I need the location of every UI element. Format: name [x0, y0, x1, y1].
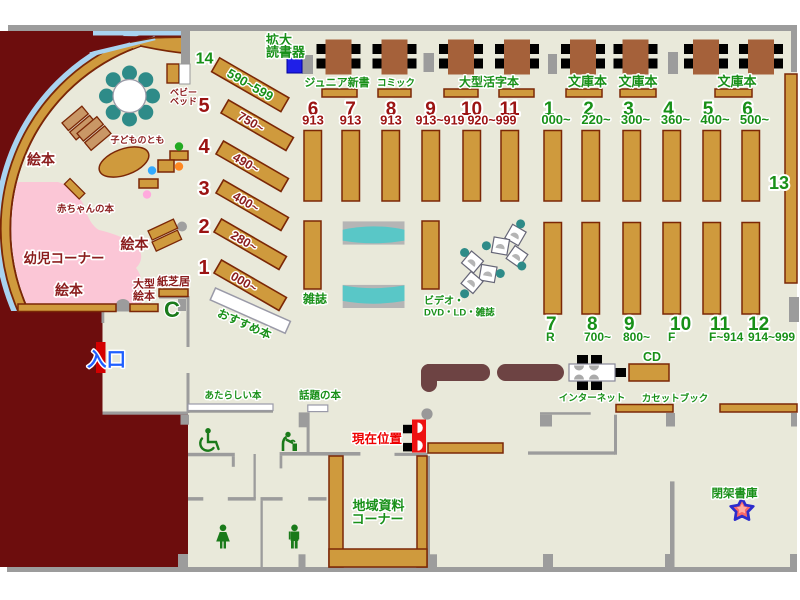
- svg-text:コミック: コミック: [377, 78, 415, 89]
- svg-text:913~919: 913~919: [415, 114, 464, 128]
- svg-text:絵本: 絵本: [55, 282, 84, 298]
- svg-text:紙芝居: 紙芝居: [157, 274, 190, 288]
- svg-text:F: F: [668, 330, 675, 344]
- svg-text:DVD・LD・雑誌: DVD・LD・雑誌: [424, 307, 495, 319]
- svg-text:閉架書庫: 閉架書庫: [712, 486, 758, 500]
- svg-text:話題の本: 話題の本: [299, 389, 341, 402]
- svg-text:800~: 800~: [623, 330, 650, 344]
- svg-text:幼児コーナー: 幼児コーナー: [24, 250, 105, 266]
- svg-text:913: 913: [380, 113, 402, 128]
- svg-text:F~914: F~914: [709, 330, 744, 344]
- svg-text:1: 1: [198, 257, 209, 279]
- svg-text:500~: 500~: [740, 112, 770, 127]
- svg-text:赤ちゃんの本: 赤ちゃんの本: [57, 203, 115, 215]
- svg-text:雑誌: 雑誌: [302, 291, 327, 306]
- svg-text:220~: 220~: [581, 112, 611, 127]
- svg-text:カセットブック: カセットブック: [642, 393, 709, 405]
- svg-text:4: 4: [198, 136, 210, 158]
- svg-text:400~: 400~: [700, 112, 730, 127]
- svg-text:大型: 大型: [133, 277, 155, 291]
- svg-text:14: 14: [196, 51, 214, 68]
- svg-text:現在位置: 現在位置: [352, 431, 403, 446]
- svg-text:ジュニア新書: ジュニア新書: [304, 75, 369, 89]
- svg-text:インターネット: インターネット: [559, 392, 626, 404]
- svg-text:2: 2: [198, 216, 209, 238]
- svg-text:R: R: [546, 330, 555, 344]
- svg-text:913: 913: [340, 113, 362, 128]
- svg-text:文庫本: 文庫本: [618, 74, 657, 89]
- svg-text:絵本: 絵本: [27, 152, 56, 168]
- svg-text:300~: 300~: [621, 112, 651, 127]
- svg-text:絵本: 絵本: [133, 289, 155, 303]
- svg-text:子どものとも: 子どものとも: [110, 134, 164, 145]
- svg-text:700~: 700~: [584, 330, 611, 344]
- svg-text:入口: 入口: [87, 349, 126, 371]
- svg-text:読書器: 読書器: [266, 45, 306, 60]
- svg-text:文庫本: 文庫本: [568, 74, 607, 89]
- svg-text:000~: 000~: [541, 112, 571, 127]
- svg-text:コーナー: コーナー: [351, 512, 403, 527]
- svg-text:絵本: 絵本: [121, 236, 150, 252]
- svg-text:あたらしい本: あたらしい本: [204, 390, 262, 402]
- svg-text:3: 3: [198, 178, 209, 200]
- svg-text:ベッド: ベッド: [170, 97, 197, 107]
- svg-text:914~999: 914~999: [748, 330, 795, 344]
- svg-text:360~: 360~: [661, 112, 691, 127]
- svg-text:13: 13: [769, 173, 789, 193]
- svg-text:大型活字本: 大型活字本: [459, 74, 519, 89]
- svg-text:ビデオ・: ビデオ・: [424, 294, 464, 307]
- svg-text:913: 913: [302, 113, 324, 128]
- svg-text:920~999: 920~999: [467, 114, 516, 128]
- svg-text:5: 5: [198, 95, 209, 117]
- svg-text:C: C: [164, 297, 180, 322]
- svg-text:文庫本: 文庫本: [717, 74, 756, 89]
- svg-text:CD: CD: [643, 350, 661, 364]
